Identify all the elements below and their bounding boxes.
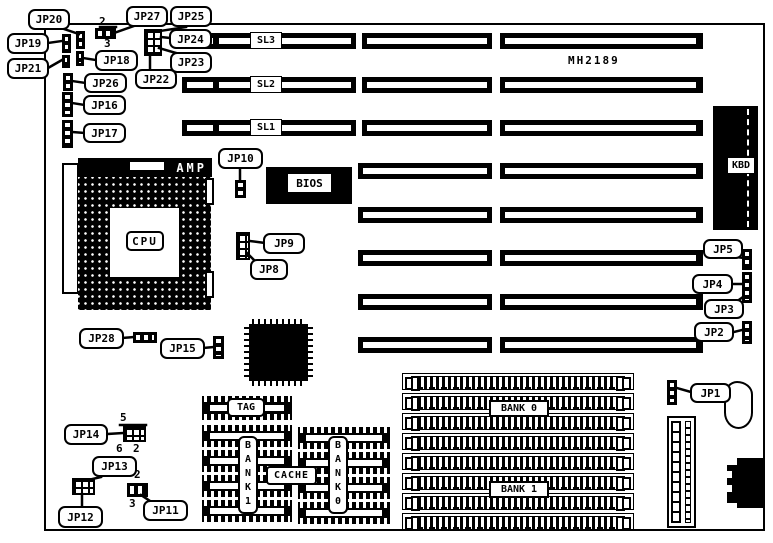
jumper-jp10 — [235, 180, 246, 198]
jumper-jp1 — [667, 380, 677, 405]
motherboard-diagram: SL3 SL2 SL1 MH2189 KBD AMP CPU BIOS — [0, 0, 773, 543]
jp3-label: JP3 — [704, 299, 744, 319]
jp10-label: JP10 — [218, 148, 263, 169]
cpu-socket-key-notch — [205, 271, 214, 298]
simm-bank1-label: BANK 1 — [489, 481, 549, 498]
simm-socket — [402, 513, 634, 530]
jumper-jp16 — [62, 92, 73, 117]
jp25-label: JP25 — [170, 6, 212, 27]
part-number-text: MH2189 — [568, 54, 620, 67]
isa-slot-segment — [358, 163, 492, 179]
jp14-pin6-number: 6 — [116, 443, 123, 454]
jp8-label: JP8 — [250, 259, 288, 280]
jumper-jp17 — [62, 120, 73, 148]
jumper-jp11 — [127, 483, 148, 497]
jumper-jp21 — [62, 55, 70, 68]
jp28-label: JP28 — [79, 328, 124, 349]
jumper-jp2 — [742, 321, 752, 344]
cache-bank1-label: BANK1 — [238, 436, 258, 514]
jp17-label: JP17 — [83, 123, 126, 143]
jp14-pin2-number: 2 — [133, 443, 140, 454]
jp5-label: JP5 — [703, 239, 743, 259]
isa-slot-segment — [500, 294, 703, 310]
jp2-label: JP2 — [694, 322, 734, 342]
jp18-label: JP18 — [95, 50, 138, 71]
jp13-label: JP13 — [92, 456, 137, 477]
isa-slot-segment — [362, 77, 492, 93]
jp27-label: JP27 — [126, 6, 168, 27]
slot-sl2-label: SL2 — [250, 76, 282, 93]
jumper-block-jp3-jp4 — [742, 272, 752, 303]
power-connector-pins — [671, 421, 681, 523]
jp23-label: JP23 — [170, 52, 212, 73]
jumper-jp26 — [63, 73, 73, 91]
jumper-jp14 — [123, 426, 146, 442]
qfp-pins-top — [252, 319, 305, 324]
jp4-label: JP4 — [692, 274, 733, 294]
cpu-side-bracket — [62, 163, 79, 294]
bios-label: BIOS — [287, 173, 332, 193]
jp15-label: JP15 — [160, 338, 205, 359]
simm-socket — [402, 433, 634, 450]
jumper-jp28 — [133, 332, 157, 343]
jumper-jp5 — [742, 249, 752, 270]
jp14-pin5-number: 5 — [120, 412, 127, 423]
jumper-block-jp8-jp9 — [236, 232, 250, 260]
jp1-label: JP1 — [690, 383, 731, 403]
simm-socket — [402, 453, 634, 470]
jp11-label: JP11 — [143, 500, 188, 521]
jp16-label: JP16 — [83, 95, 126, 115]
cache-bank0-label: BANK0 — [328, 436, 348, 514]
isa-slot-segment — [358, 207, 492, 223]
jumper-jp15 — [213, 336, 224, 359]
slot-sl1-label: SL1 — [250, 119, 282, 136]
isa-slot-segment — [500, 120, 703, 136]
jp24-label: JP24 — [169, 29, 212, 49]
cpu-socket-key-notch — [205, 178, 214, 205]
isa-slot-segment — [500, 207, 703, 223]
din-connector-notch — [727, 471, 732, 478]
amp-label: AMP — [176, 161, 207, 175]
jp21-label: JP21 — [7, 58, 49, 79]
cache-label: CACHE — [266, 466, 317, 485]
amp-connector: AMP — [78, 158, 212, 177]
jp27-pin2-number: 2 — [99, 16, 106, 27]
jp27-pin3-number: 3 — [104, 38, 111, 49]
isa-slot-segment — [358, 294, 492, 310]
jumper-block-jp22-jp25 — [144, 29, 162, 56]
tag-label: TAG — [227, 398, 265, 417]
qfp-pins-right — [308, 327, 313, 378]
isa-slot-segment — [500, 77, 703, 93]
jumper-block-jp12-jp13 — [72, 478, 95, 495]
jp9-label: JP9 — [263, 233, 305, 254]
jumper-jp18 — [76, 51, 84, 66]
jp22-label: JP22 — [135, 69, 177, 89]
slot-sl3-label: SL3 — [250, 32, 282, 49]
isa-slot-segment — [358, 337, 492, 353]
jp12-label: JP12 — [58, 506, 103, 528]
isa-slot-segment — [362, 120, 492, 136]
jumper-jp19 — [62, 34, 71, 53]
din-connector-notch — [727, 485, 732, 492]
isa-slot-segment — [500, 163, 703, 179]
isa-slot-segment — [358, 250, 492, 266]
qfp-pins-left — [244, 327, 249, 378]
din-keyboard-connector — [737, 458, 763, 508]
simm-socket — [402, 373, 634, 390]
jp14-label: JP14 — [64, 424, 108, 445]
jp11-pin3-number: 3 — [129, 498, 136, 509]
isa-slot-segment — [500, 33, 703, 49]
jumper-jp20 — [76, 31, 85, 49]
isa-slot-segment — [500, 250, 703, 266]
kbd-label: KBD — [727, 157, 755, 174]
jp19-label: JP19 — [7, 33, 49, 54]
power-connector-rail — [685, 421, 691, 523]
isa-slot-segment — [500, 337, 703, 353]
qfp-pins-bottom — [252, 381, 305, 386]
qfp-chip — [249, 324, 308, 381]
cpu-label: CPU — [126, 231, 164, 251]
jp26-label: JP26 — [84, 73, 127, 93]
simm-bank0-label: BANK 0 — [489, 400, 549, 417]
jp20-label: JP20 — [28, 9, 70, 30]
isa-slot-segment — [362, 33, 492, 49]
